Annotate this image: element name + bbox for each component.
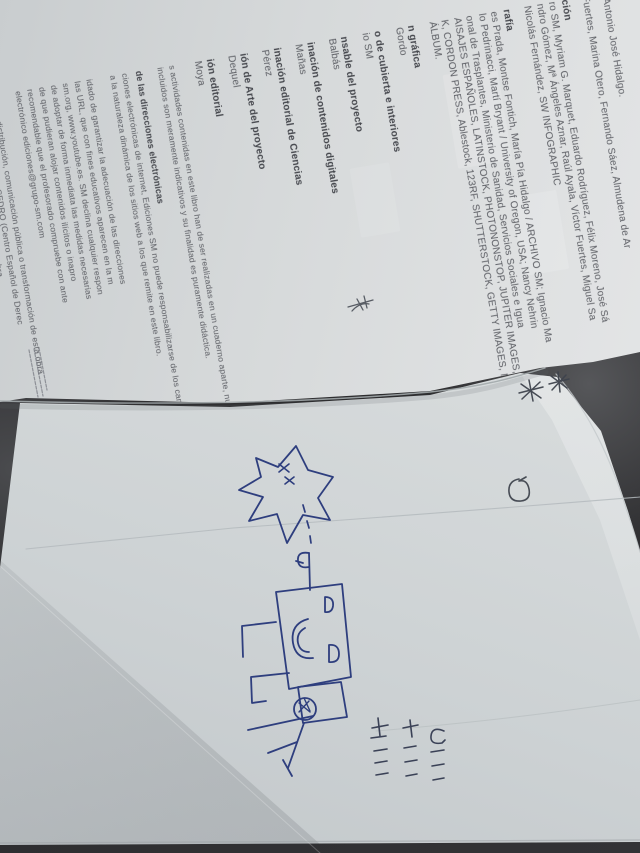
photo-canvas: , Antonio José Hidalgo.Fuertes, Marina O… — [0, 0, 640, 853]
